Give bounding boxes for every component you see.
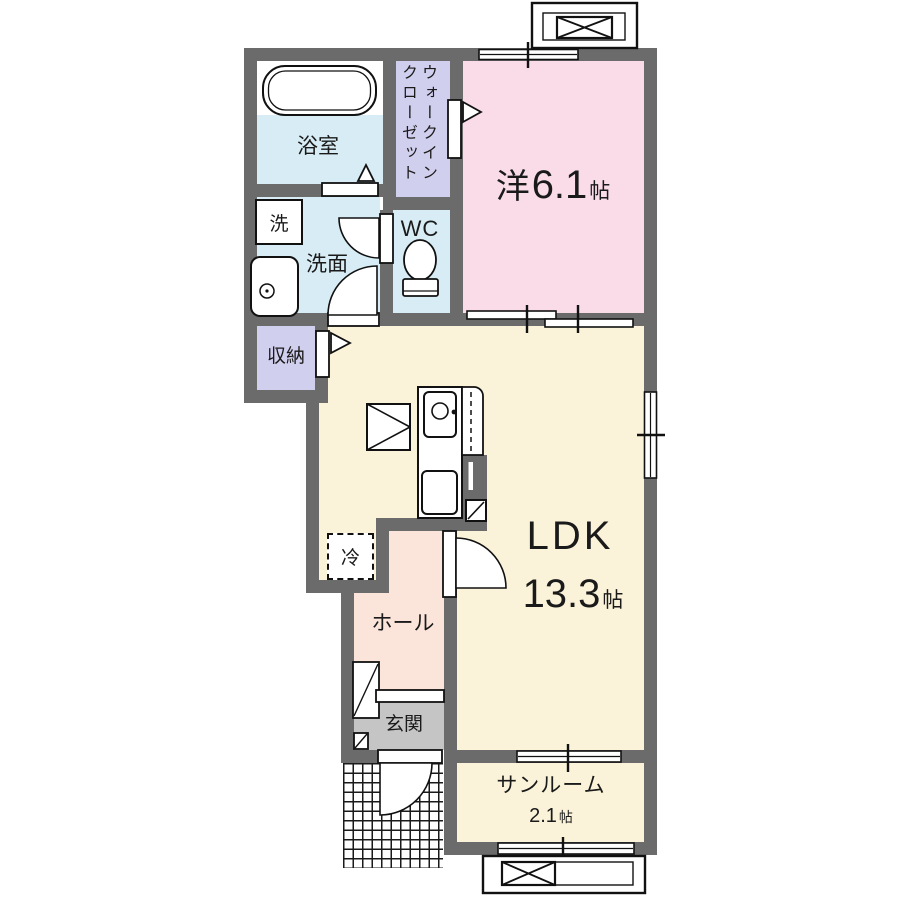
wic-label-line2: クローゼット <box>397 64 417 184</box>
wic-label-line1: ウォークイン <box>417 64 437 184</box>
wc-label: WC <box>394 216 446 241</box>
ldk-label: LDK <box>470 513 670 559</box>
entrance-step <box>376 690 444 702</box>
western-room-label: 洋6.1帖 <box>462 162 644 208</box>
wc-door-arc <box>339 218 379 258</box>
entrance-label: 玄関 <box>364 714 444 736</box>
bath-door-swing-triangle <box>358 165 374 181</box>
storage-door-leaf <box>316 331 329 377</box>
entry-door-arc <box>380 763 432 815</box>
kitchen-hatch-panel <box>462 387 483 455</box>
wic-door-swing-triangle <box>463 102 481 122</box>
toilet-icon <box>403 240 438 296</box>
storage-door-swing-triangle <box>331 333 350 353</box>
counter-table-icon <box>367 404 410 450</box>
wic-door-leaf <box>448 100 461 158</box>
bath-door-leaf <box>322 183 378 196</box>
wall-stub-tick <box>469 462 474 490</box>
washroom-label: 洗面 <box>295 253 359 277</box>
bath-label: 浴室 <box>288 135 348 159</box>
sunroom-label: サンルーム <box>459 774 643 798</box>
hall-label: ホール <box>352 612 454 636</box>
shoe-cabinet-icon <box>353 662 444 749</box>
entry-door-leaf <box>378 750 442 763</box>
washbasin-icon <box>251 257 298 316</box>
outdoor-unit-bottom <box>483 856 645 893</box>
sliding-door-bedroom-ldk-left <box>467 311 556 319</box>
sunroom-size-label: 2.1帖 <box>459 805 643 828</box>
outdoor-unit-top <box>532 3 637 48</box>
kitchen-stove-icon <box>422 471 457 514</box>
sliding-door-bedroom-ldk-right <box>545 319 633 327</box>
bathtub-icon <box>263 66 376 115</box>
kitchen-counter <box>418 387 483 518</box>
ldk-door-leaf <box>443 531 456 597</box>
fixtures-overlay <box>0 0 900 900</box>
floor-plan-canvas: 洗 冷 <box>0 0 900 900</box>
storage-label: 収納 <box>255 346 317 368</box>
ldk-size-label: 13.3帖 <box>463 571 683 617</box>
wc-door-leaf <box>380 214 393 263</box>
